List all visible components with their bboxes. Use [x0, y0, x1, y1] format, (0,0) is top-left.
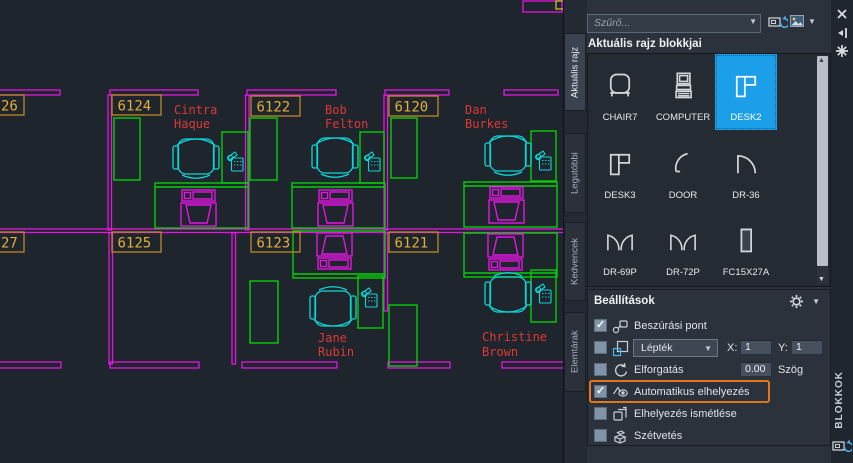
insertion-point-checkbox[interactable] [594, 319, 607, 332]
close-icon[interactable] [834, 6, 850, 22]
insert-blocks-icon[interactable] [832, 437, 852, 455]
explode-checkbox[interactable] [594, 429, 607, 442]
angle-label: Szög [778, 364, 803, 376]
svg-text:Burkes: Burkes [465, 117, 508, 131]
setting-row-insertion-point: Beszúrási pont [588, 317, 832, 336]
palette-tab-strip: Aktuális rajz Legutóbbi Kedvencek Elemtá… [564, 0, 587, 463]
svg-text:Dan: Dan [465, 103, 487, 117]
auto-placement-checkbox[interactable] [594, 385, 607, 398]
tab-recent[interactable]: Legutóbbi [564, 133, 586, 213]
setting-row-rotation: Elforgatás 0.00 Szög [588, 361, 832, 380]
repeat-placement-icon [612, 406, 629, 423]
section-title: Aktuális rajz blokkjai [588, 38, 702, 50]
block-tile-dr36[interactable]: DR-36 [715, 132, 777, 208]
svg-text:Felton: Felton [325, 117, 368, 131]
computer-block-icon [652, 62, 714, 110]
floor-plan: 26 6124 6122 6120 27 6125 6123 6121 Cint… [0, 0, 563, 463]
svg-text:Bob: Bob [325, 103, 347, 117]
svg-text:Cintra: Cintra [174, 103, 217, 117]
setting-row-auto-placement: Automatikus elhelyezés [588, 383, 832, 402]
tab-libraries[interactable]: Elemtárak [564, 312, 586, 392]
room-number: 6125 [118, 236, 152, 252]
svg-text:Haque: Haque [174, 117, 210, 131]
scroll-down-icon[interactable]: ▼ [818, 276, 825, 283]
settings-section: Beállítások ▼ [587, 289, 831, 446]
repeat-placement-checkbox[interactable] [594, 407, 607, 420]
scale-dropdown[interactable]: Lépték ▼ [633, 339, 718, 357]
double-door-block-icon [652, 217, 714, 265]
palette-name-vertical: BLOKKOK [834, 371, 845, 429]
explode-icon [612, 428, 629, 445]
svg-text:Jane: Jane [318, 331, 347, 345]
thumbnail-view-icon[interactable] [790, 13, 805, 31]
tab-current-drawing[interactable]: Aktuális rajz [564, 33, 586, 111]
auto-hide-pin-icon[interactable] [834, 25, 850, 41]
rotation-checkbox[interactable] [594, 363, 607, 376]
cabinet-block-icon [715, 217, 777, 265]
filter-input[interactable] [587, 14, 761, 33]
scrollbar-thumb[interactable] [817, 56, 828, 266]
door-block-icon [652, 140, 714, 188]
setting-row-scale: Lépték ▼ X: 1 Y: 1 [588, 339, 832, 358]
room-number: 6122 [257, 100, 291, 116]
rotation-label: Elforgatás [634, 364, 684, 376]
scale-icon [612, 340, 629, 357]
angle-input[interactable]: 0.00 [740, 362, 772, 377]
block-tile-dr72p[interactable]: DR-72P [652, 209, 714, 285]
block-tile-desk3[interactable]: DESK3 [589, 132, 651, 208]
block-tile-dr69p[interactable]: DR-69P [589, 209, 651, 285]
room-number: 27 [1, 236, 18, 252]
room-number: 6124 [118, 99, 152, 115]
replace-block-icon[interactable] [768, 13, 788, 31]
palette-title-bar: BLOKKOK [831, 0, 853, 463]
blocks-scrollbar[interactable]: ▲ ▼ [817, 56, 828, 284]
block-tile-chair7[interactable]: CHAIR7 [589, 54, 651, 130]
application-window: 26 6124 6122 6120 27 6125 6123 6121 Cint… [0, 0, 853, 463]
scale-dropdown-value: Lépték [641, 342, 673, 354]
view-options-caret[interactable]: ▼ [808, 17, 816, 26]
svg-text:Brown: Brown [482, 345, 518, 359]
block-tile-door[interactable]: DOOR [652, 132, 714, 208]
desk-block-icon [589, 140, 651, 188]
blocks-palette: Aktuális rajz Legutóbbi Kedvencek Elemtá… [563, 0, 853, 463]
door-swing-block-icon [715, 140, 777, 188]
room-number: 6121 [395, 236, 429, 252]
room-number: 6120 [395, 100, 429, 116]
tab-favorites[interactable]: Kedvencek [564, 222, 586, 301]
properties-star-icon[interactable] [834, 43, 850, 59]
block-grid-panel: CHAIR7 COMPUTER [587, 53, 831, 287]
scale-x-label: X: [727, 342, 737, 354]
room-number: 26 [1, 99, 18, 115]
block-tile-computer[interactable]: COMPUTER [652, 54, 714, 130]
rotation-icon [612, 362, 629, 379]
gear-icon[interactable] [789, 294, 804, 314]
desk-block-icon [715, 62, 777, 110]
scale-checkbox[interactable] [594, 341, 607, 354]
scroll-up-icon[interactable]: ▲ [818, 57, 825, 64]
setting-row-explode: Szétvetés [588, 427, 832, 446]
insertion-point-label: Beszúrási pont [634, 320, 707, 332]
auto-placement-label: Automatikus elhelyezés [634, 386, 750, 398]
svg-text:Christine: Christine [482, 330, 547, 344]
insertion-point-icon [612, 318, 629, 335]
scale-dropdown-caret: ▼ [704, 344, 712, 353]
svg-text:Rubin: Rubin [318, 345, 354, 359]
scale-y-input[interactable]: 1 [791, 340, 823, 355]
scale-y-label: Y: [778, 342, 788, 354]
filter-search: ▼ [587, 13, 761, 32]
auto-placement-icon [612, 384, 629, 401]
double-door-block-icon [589, 217, 651, 265]
settings-title: Beállítások [594, 295, 655, 307]
settings-options-caret[interactable]: ▼ [812, 297, 820, 306]
chair-block-icon [589, 62, 651, 110]
setting-row-repeat-placement: Elhelyezés ismétlése [588, 405, 832, 424]
room-number: 6123 [257, 236, 291, 252]
drawing-canvas[interactable]: 26 6124 6122 6120 27 6125 6123 6121 Cint… [0, 0, 563, 463]
repeat-placement-label: Elhelyezés ismétlése [634, 408, 737, 420]
block-tile-fc15x27a[interactable]: FC15X27A [715, 209, 777, 285]
scale-x-input[interactable]: 1 [740, 340, 772, 355]
block-tile-desk2[interactable]: DESK2 [715, 54, 777, 130]
explode-label: Szétvetés [634, 430, 682, 442]
